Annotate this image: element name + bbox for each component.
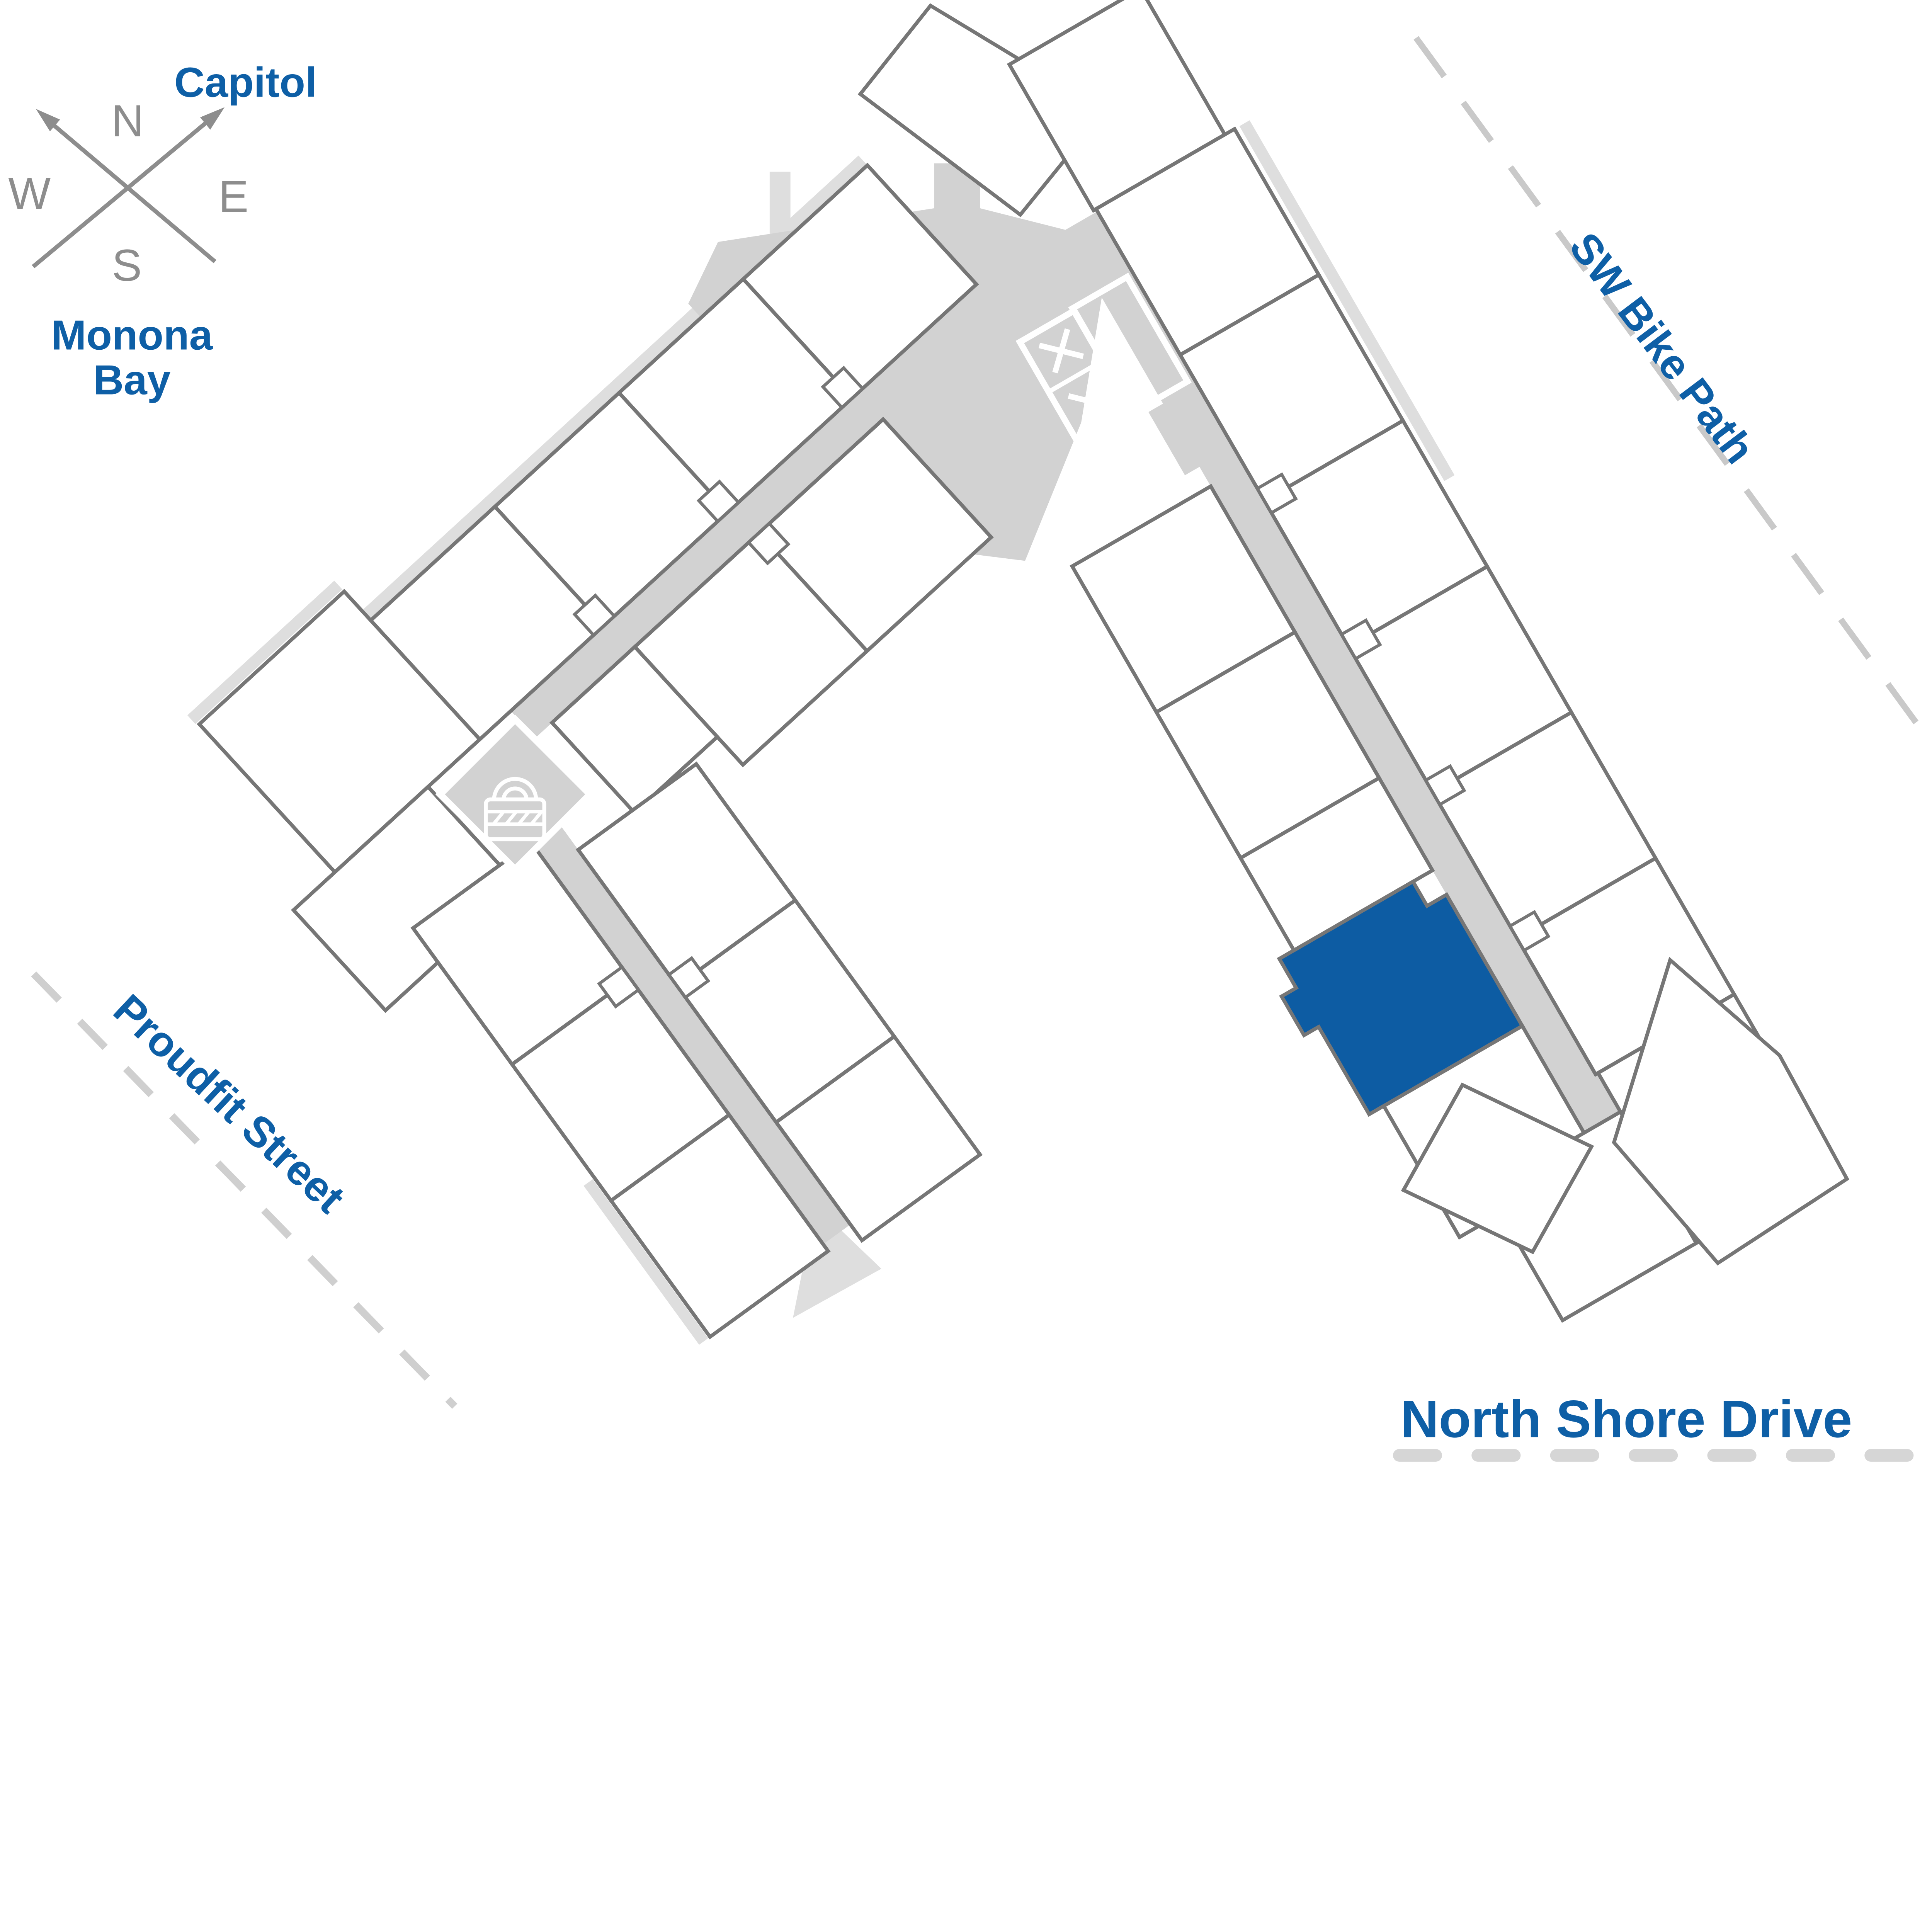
proudfit-street-line	[34, 974, 455, 1406]
capitol-label: Capitol	[174, 59, 317, 106]
sw-bike-path-label: SW Bike Path	[1560, 224, 1764, 472]
site-plan-map: N W E S Capitol Monona Bay SW Bike Path …	[0, 0, 1932, 1465]
compass-s: S	[112, 240, 142, 290]
monona-bay-label-line2: Bay	[93, 357, 170, 404]
north-shore-drive-label: North Shore Drive	[1401, 1389, 1852, 1448]
compass: N W E S	[8, 95, 248, 290]
monona-bay-label-line1: Monona	[51, 311, 213, 359]
compass-e: E	[219, 171, 249, 221]
proudfit-street-label: Proudfit Street	[105, 985, 354, 1222]
compass-w: W	[8, 168, 51, 219]
compass-n: N	[112, 95, 144, 146]
